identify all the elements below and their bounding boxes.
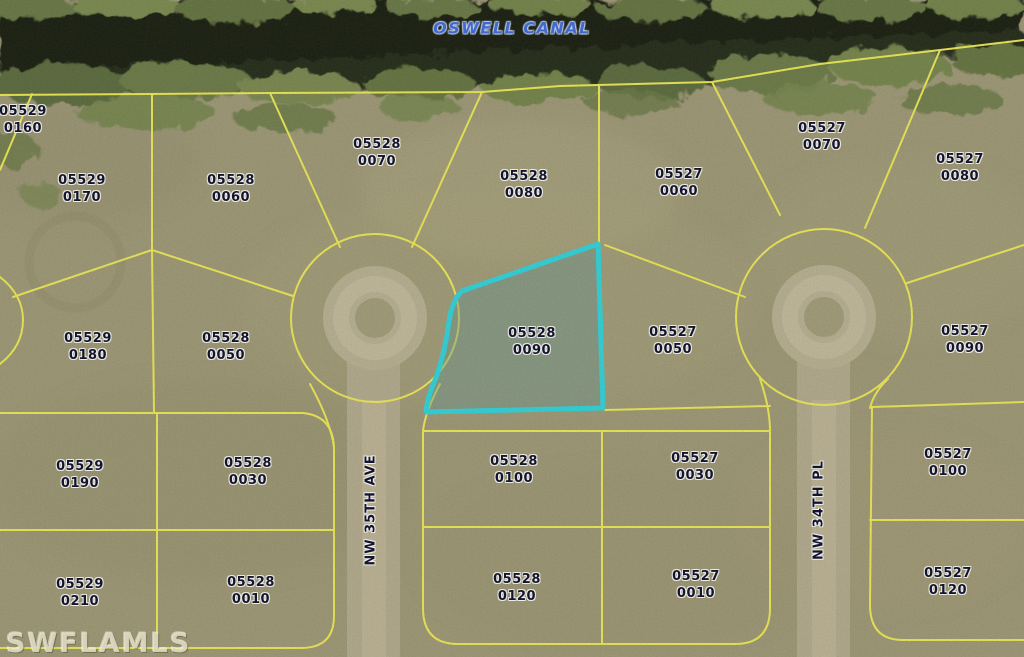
parcel-label: 055290180 [64,331,112,365]
parcel-label: 055270070 [798,121,846,155]
parcel-label: 055270120 [924,566,972,600]
street-label-nw-34th-pl: NW 34TH PL [812,460,827,560]
street-label-nw-35th-ave: NW 35TH AVE [364,454,379,565]
parcel-label: 055270080 [936,152,984,186]
parcel-label-highlighted: 055280090 [508,326,556,360]
parcel-label: 055290160 [0,104,47,138]
parcel-label: 055270010 [672,569,720,603]
parcel-label: 055270050 [649,325,697,359]
parcel-label: 055280070 [353,137,401,171]
parcel-label: 055280060 [207,173,255,207]
parcel-label: 055290170 [58,173,106,207]
aerial-map[interactable]: OSWELL CANAL NW 35TH AVE NW 34TH PL 0552… [0,0,1024,657]
parcel-label: 055280120 [493,572,541,606]
parcel-label: 055280100 [490,454,538,488]
parcel-label: 055270100 [924,447,972,481]
parcel-label: 055290190 [56,459,104,493]
parcel-label: 055270060 [655,167,703,201]
parcel-label: 055280080 [500,169,548,203]
parcel-label: 055280010 [227,575,275,609]
parcel-label: 055270090 [941,324,989,358]
parcel-label: 055270030 [671,451,719,485]
canal-label: OSWELL CANAL [433,19,591,38]
parcel-label: 055280050 [202,331,250,365]
watermark: SWFLAMLS [6,628,191,657]
parcel-label: 055290210 [56,577,104,611]
parcel-label: 055280030 [224,456,272,490]
